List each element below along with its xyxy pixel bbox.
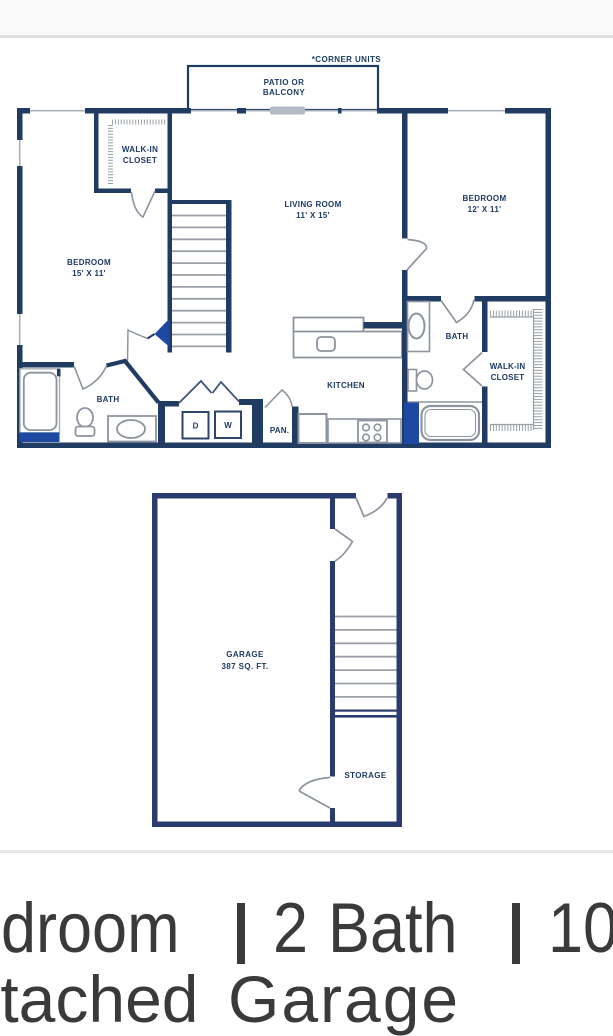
svg-text:W: W <box>224 421 232 430</box>
svg-text:PAN.: PAN. <box>270 426 289 435</box>
svg-text:STORAGE: STORAGE <box>344 771 386 780</box>
svg-text:LIVING ROOM: LIVING ROOM <box>284 200 341 209</box>
svg-text:11' X 15': 11' X 15' <box>296 211 330 220</box>
svg-text:BATH: BATH <box>97 395 120 404</box>
svg-text:GARAGE: GARAGE <box>226 650 264 659</box>
svg-text:BALCONY: BALCONY <box>263 88 306 97</box>
svg-text:CLOSET: CLOSET <box>491 373 525 382</box>
svg-text:15' X 11': 15' X 11' <box>72 269 106 278</box>
svg-text:D: D <box>193 422 199 431</box>
svg-text:12' X 11': 12' X 11' <box>468 205 502 214</box>
svg-text:BATH: BATH <box>446 332 469 341</box>
svg-text:CLOSET: CLOSET <box>123 156 157 165</box>
svg-text:387 SQ. FT.: 387 SQ. FT. <box>221 662 268 671</box>
svg-text:*CORNER UNITS: *CORNER UNITS <box>312 55 381 64</box>
svg-text:PATIO OR: PATIO OR <box>264 78 305 87</box>
svg-text:KITCHEN: KITCHEN <box>327 381 365 390</box>
svg-text:BEDROOM: BEDROOM <box>463 194 507 203</box>
svg-text:BEDROOM: BEDROOM <box>67 258 111 267</box>
svg-text:WALK-IN: WALK-IN <box>122 145 158 154</box>
svg-text:WALK-IN: WALK-IN <box>490 362 526 371</box>
